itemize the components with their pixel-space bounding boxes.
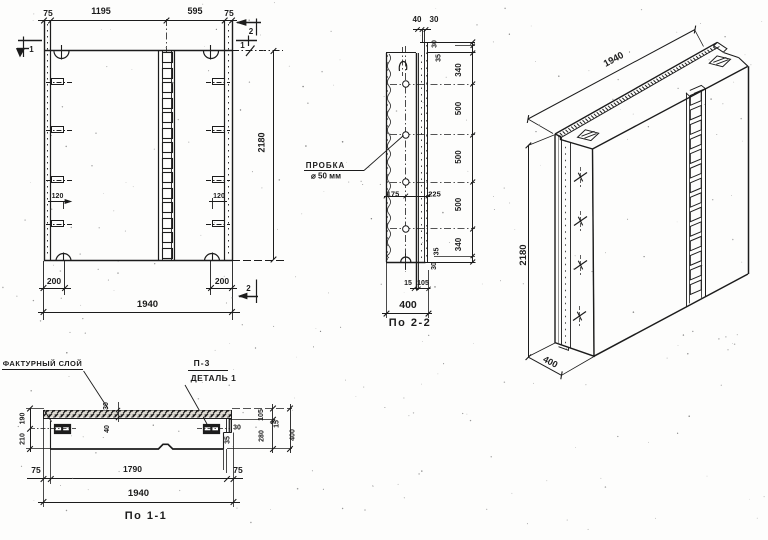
svg-text:15: 15 [274,420,281,428]
svg-text:2180: 2180 [257,132,267,152]
svg-text:190: 190 [20,413,27,425]
svg-text:По 1-1: По 1-1 [125,510,168,522]
svg-text:75: 75 [224,8,234,18]
svg-text:500: 500 [454,150,463,164]
svg-text:35: 35 [434,248,441,256]
svg-text:120: 120 [213,193,225,200]
svg-text:35: 35 [225,436,232,444]
svg-text:1: 1 [29,45,34,54]
svg-text:75: 75 [43,8,53,18]
svg-text:200: 200 [47,276,61,286]
svg-text:30: 30 [430,15,439,24]
svg-text:30: 30 [103,402,110,410]
svg-text:ДЕТАЛЬ 1: ДЕТАЛЬ 1 [191,373,237,383]
svg-text:400: 400 [290,429,297,441]
svg-text:500: 500 [454,101,463,115]
svg-text:По 2-2: По 2-2 [389,317,432,329]
svg-text:15: 15 [404,280,412,287]
svg-text:1940: 1940 [128,488,149,499]
svg-text:595: 595 [187,6,202,16]
svg-text:340: 340 [454,237,463,251]
svg-text:1: 1 [240,41,245,50]
svg-text:340: 340 [454,63,463,77]
svg-text:280: 280 [259,430,266,442]
svg-text:1195: 1195 [91,6,111,16]
svg-text:30: 30 [432,40,439,48]
svg-text:500: 500 [454,197,463,211]
svg-text:⌀ 50 мм: ⌀ 50 мм [311,172,341,181]
svg-text:1940: 1940 [137,299,158,310]
svg-text:225: 225 [428,190,441,199]
svg-text:ПРОБКА: ПРОБКА [306,161,346,170]
svg-text:75: 75 [31,465,41,475]
svg-text:2: 2 [246,284,251,293]
svg-text:120: 120 [52,193,64,200]
svg-text:1790: 1790 [123,464,142,474]
svg-text:400: 400 [399,299,417,311]
svg-text:2180: 2180 [518,244,529,265]
svg-text:105: 105 [258,409,265,421]
svg-text:75: 75 [233,465,243,475]
svg-text:40: 40 [413,15,422,24]
svg-text:105: 105 [417,280,429,287]
svg-text:35: 35 [436,54,443,62]
svg-text:40: 40 [104,425,111,433]
svg-text:200: 200 [215,276,229,286]
svg-text:30: 30 [431,262,438,270]
svg-text:П-3: П-3 [194,358,211,368]
svg-text:ФАКТУРНЫЙ СЛОЙ: ФАКТУРНЫЙ СЛОЙ [3,359,83,368]
svg-text:30: 30 [233,425,241,432]
svg-text:210: 210 [20,433,27,445]
svg-text:2: 2 [249,27,254,36]
svg-text:175: 175 [387,190,400,199]
